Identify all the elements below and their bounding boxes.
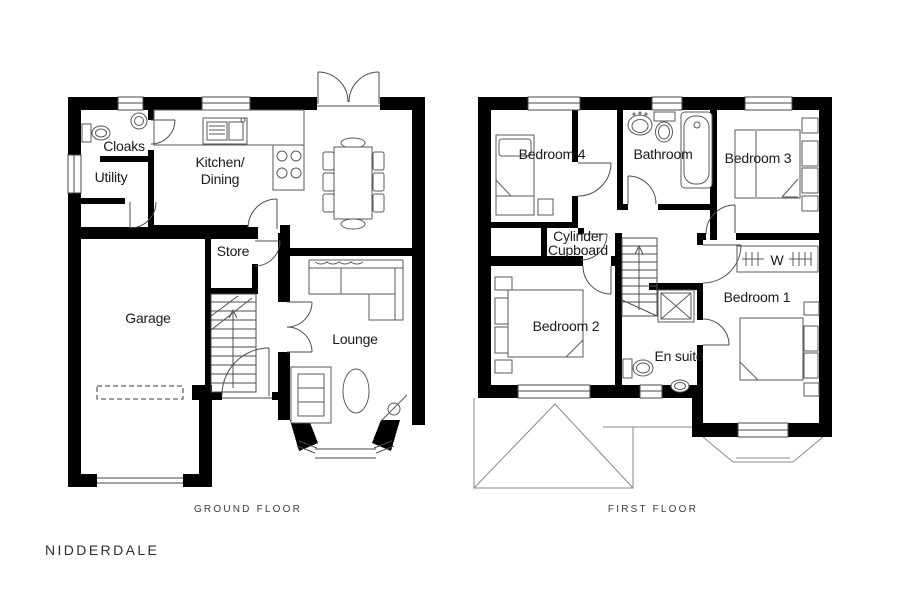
room-label-bedroom2: Bedroom 2 xyxy=(533,318,600,334)
room-label-kitchen-line1: Kitchen/ xyxy=(196,154,245,170)
ensuite-door xyxy=(703,319,729,345)
window xyxy=(652,97,682,110)
ground-floor-plan: Cloaks Utility Kitchen/ Dining Store Gar… xyxy=(68,72,425,487)
room-label-bathroom: Bathroom xyxy=(633,146,692,162)
french-doors xyxy=(317,72,380,106)
stairs-icon xyxy=(211,294,256,392)
floor-lamp-icon xyxy=(381,395,407,421)
window xyxy=(528,97,580,110)
roof-outlines xyxy=(474,398,823,488)
shower-icon xyxy=(658,290,694,322)
lounge-double-doors xyxy=(287,302,312,352)
window xyxy=(738,423,788,437)
corner-sofa-icon xyxy=(309,260,403,320)
floorplan-canvas: Cloaks Utility Kitchen/ Dining Store Gar… xyxy=(0,0,900,600)
room-label-utility: Utility xyxy=(95,169,128,185)
bedroom4-door xyxy=(578,163,611,196)
ground-floor-caption: GROUND FLOOR xyxy=(194,504,302,515)
room-label-bedroom3: Bedroom 3 xyxy=(725,150,792,166)
room-label-ensuite: En suite xyxy=(655,348,704,364)
bathroom-door xyxy=(628,176,656,204)
ensuite-basin-icon xyxy=(671,380,689,392)
captions: GROUND FLOOR FIRST FLOOR NIDDERDALE xyxy=(45,504,698,558)
room-label-lounge: Lounge xyxy=(332,331,378,347)
plot-name: NIDDERDALE xyxy=(45,542,159,558)
room-label-bedroom4: Bedroom 4 xyxy=(519,146,586,162)
room-label-cloaks: Cloaks xyxy=(103,138,145,154)
hob-icon xyxy=(277,151,301,178)
window xyxy=(68,155,81,193)
kitchen-door xyxy=(248,199,277,229)
window xyxy=(745,97,792,110)
dining-table-icon xyxy=(323,138,384,229)
window xyxy=(202,97,250,110)
armchair-icon xyxy=(291,367,331,423)
window xyxy=(118,97,143,110)
garage-door-dashed xyxy=(97,386,183,399)
stairs-icon xyxy=(622,238,657,316)
room-label-garage: Garage xyxy=(125,310,171,326)
ottoman-icon xyxy=(343,369,369,413)
kitchen-sink-icon xyxy=(203,118,247,144)
bathroom-sink-icon xyxy=(628,112,652,135)
bathroom-toilet-icon xyxy=(654,112,675,142)
room-label-bedroom1: Bedroom 1 xyxy=(724,289,791,305)
bedroom1-door xyxy=(703,245,741,283)
bedroom2-door xyxy=(583,266,611,294)
floorplan-page: Cloaks Utility Kitchen/ Dining Store Gar… xyxy=(0,0,900,600)
bed-icon-bedroom1 xyxy=(740,302,819,396)
room-label-wardrobe: W xyxy=(770,252,784,268)
cloaks-door xyxy=(151,120,175,144)
room-label-kitchen-line2: Dining xyxy=(201,171,240,187)
cloaks-basin-icon xyxy=(131,113,147,129)
store-door xyxy=(255,241,280,266)
room-label-cylinder-line2: Cupboard xyxy=(548,242,608,258)
first-floor-caption: FIRST FLOOR xyxy=(608,504,698,515)
ensuite-toilet-icon xyxy=(623,359,653,378)
window xyxy=(640,385,662,398)
garage-door xyxy=(97,474,183,487)
first-floor-plan: Bedroom 4 Bathroom Bedroom 3 Cylinder Cu… xyxy=(474,97,832,488)
room-label-store: Store xyxy=(217,243,250,259)
window xyxy=(518,385,590,398)
